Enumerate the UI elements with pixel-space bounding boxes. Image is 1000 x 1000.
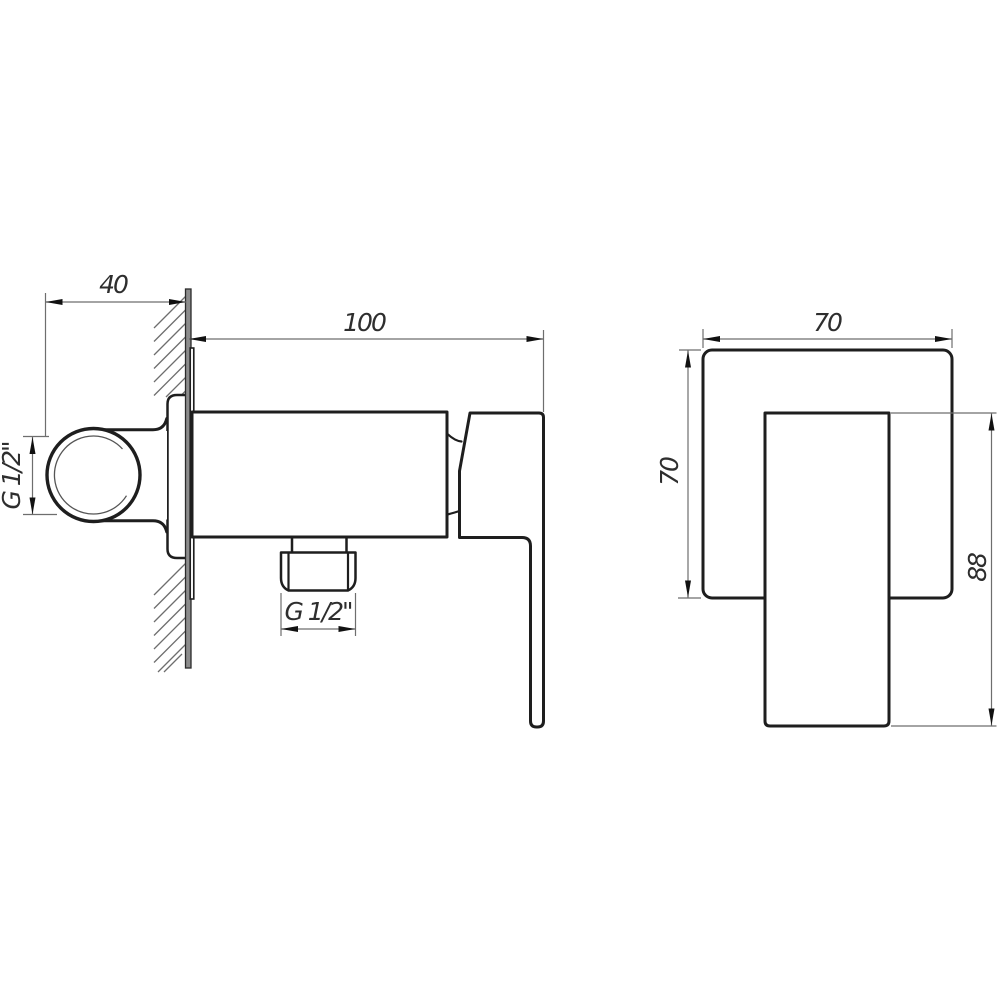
arrowhead-down — [685, 581, 691, 598]
front-view — [703, 350, 952, 726]
arrowhead-down — [30, 498, 36, 515]
arrowhead-right — [935, 336, 952, 342]
drawing-canvas: 40 100 G 1/2" G 1/2" — [0, 0, 1000, 1000]
dimension-plate-width: 70 — [703, 308, 952, 348]
dimension-label: G 1/2" — [0, 442, 26, 510]
arrowhead-left — [281, 626, 298, 632]
arrowhead-left — [46, 299, 63, 305]
outlet-nut — [281, 553, 356, 591]
dimension-wall-depth: 40 — [46, 270, 187, 437]
inlet-outer-circle — [47, 429, 140, 522]
arrowhead-up — [30, 437, 36, 454]
side-view — [47, 289, 544, 727]
arrowhead-down — [989, 709, 995, 726]
arrowhead-up — [685, 351, 691, 368]
dimension-body-length: 100 — [189, 308, 544, 412]
faucet-body — [192, 412, 447, 537]
handle-front — [765, 413, 889, 726]
arrowhead-up — [989, 414, 995, 431]
arrowhead-right — [527, 336, 544, 342]
cartridge-transition-arc-top — [448, 434, 462, 442]
arrowhead-left — [703, 336, 720, 342]
dimension-outlet-thread: G 1/2" — [281, 593, 356, 636]
cap-and-lever — [460, 413, 544, 727]
dimension-label: 40 — [99, 270, 128, 299]
dimension-label: 88 — [963, 553, 992, 582]
cartridge-transition-arc-bottom — [448, 511, 460, 515]
technical-drawing: 40 100 G 1/2" G 1/2" — [0, 0, 1000, 1000]
dimension-label: 70 — [655, 457, 684, 486]
outlet-neck — [292, 538, 347, 553]
dimension-label: 100 — [343, 308, 386, 337]
dimension-label: G 1/2" — [284, 597, 352, 626]
dimension-plate-height: 70 — [655, 350, 701, 598]
arrowhead-right — [339, 626, 356, 632]
dimension-label: 70 — [813, 308, 842, 337]
